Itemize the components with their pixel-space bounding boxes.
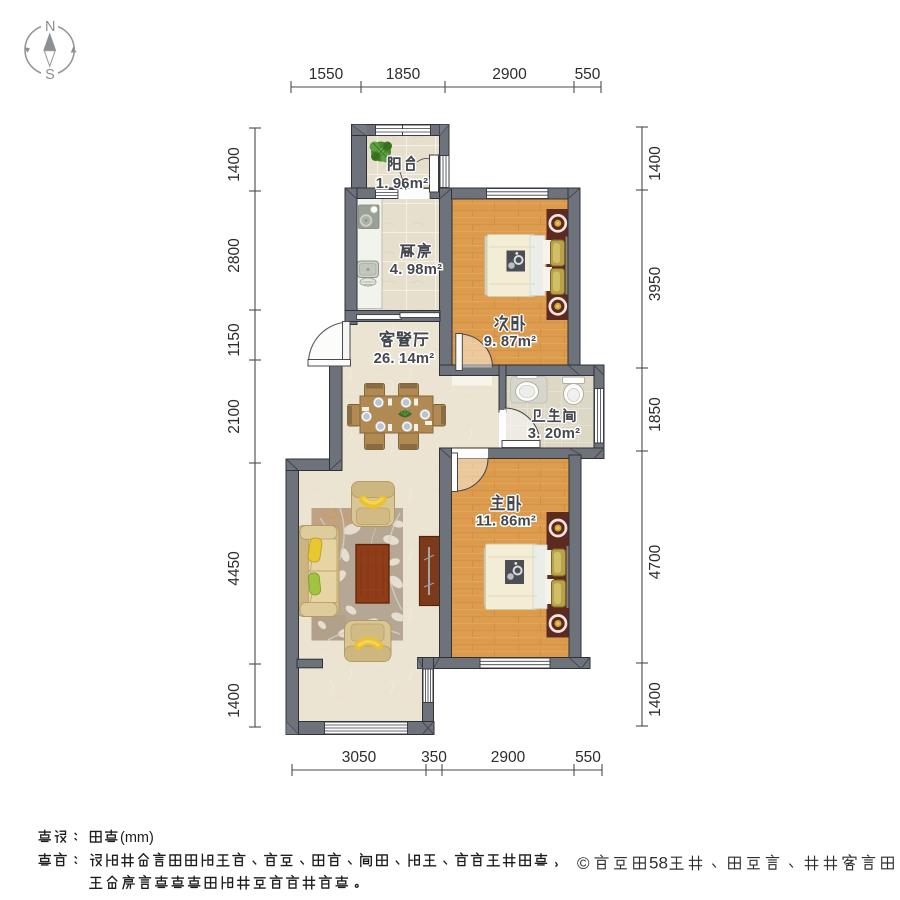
svg-text:1850: 1850 (647, 397, 664, 432)
svg-text:3050: 3050 (342, 749, 377, 766)
svg-text:1550: 1550 (309, 66, 344, 83)
svg-text:1850: 1850 (386, 66, 421, 83)
svg-text:2800: 2800 (226, 238, 243, 273)
svg-text:1400: 1400 (226, 147, 243, 182)
svg-text:1400: 1400 (647, 682, 664, 717)
svg-text:4. 98m²: 4. 98m² (390, 262, 442, 278)
svg-text:350: 350 (421, 749, 447, 766)
svg-text:1150: 1150 (226, 323, 243, 357)
svg-text:2100: 2100 (226, 399, 243, 434)
svg-text:4700: 4700 (647, 544, 664, 579)
svg-text:26. 14m²: 26. 14m² (374, 351, 435, 367)
svg-text:1400: 1400 (647, 146, 664, 181)
svg-text:9. 87m²: 9. 87m² (484, 334, 536, 350)
svg-text:S: S (45, 67, 55, 83)
svg-text:58: 58 (649, 854, 668, 873)
svg-text:11. 86m²: 11. 86m² (476, 514, 536, 530)
svg-text:2900: 2900 (492, 66, 527, 83)
svg-text:©: © (577, 854, 590, 873)
svg-text:2900: 2900 (491, 749, 526, 766)
svg-text:550: 550 (575, 749, 601, 766)
svg-text:(mm): (mm) (120, 830, 154, 846)
svg-text:3950: 3950 (647, 266, 664, 301)
svg-text:550: 550 (575, 66, 601, 83)
svg-text:N: N (45, 19, 55, 35)
svg-text:3. 20m²: 3. 20m² (528, 426, 580, 442)
svg-text:4450: 4450 (226, 551, 243, 586)
svg-text:1400: 1400 (226, 683, 243, 718)
